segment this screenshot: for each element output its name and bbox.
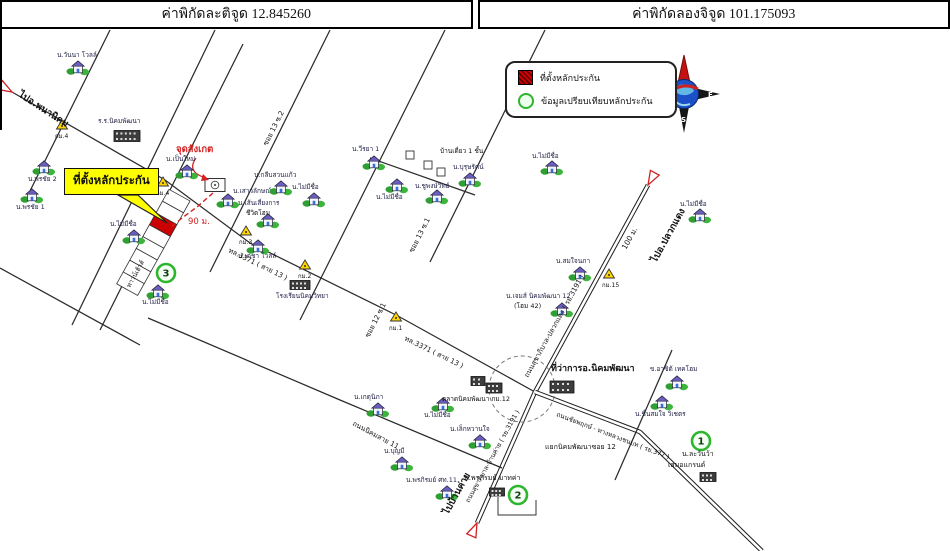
- km-marker: [608, 274, 610, 276]
- location-map: น.วันนา โวลล์น.พรชัย 2น.พรชัย 1น.ไม่มีชื…: [0, 0, 950, 551]
- building-icon: [490, 488, 505, 496]
- comparison-number: 1: [698, 437, 705, 448]
- building-icon: [486, 383, 502, 393]
- legend-item-comparison: ข้อมูลเปรียบเทียบหลักประกัน: [518, 93, 666, 109]
- house-label: น.วีรยา 1: [352, 145, 379, 153]
- house-plot-square: [406, 151, 414, 159]
- house-label: น.เป็นใหม่: [166, 154, 195, 163]
- house-label: น.ไม่มีชื่อ: [680, 199, 707, 208]
- road-ry-3191: [477, 185, 648, 523]
- house-icon: [386, 179, 409, 193]
- km-marker-label: กม.3: [239, 239, 252, 246]
- house-label: น.ไม่มีชื่อ: [424, 410, 451, 419]
- map-label: ตลาดนิคมพัฒนา กม.12: [442, 395, 510, 403]
- collateral-callout: ที่ตั้งหลักประกัน: [64, 168, 159, 195]
- map-label: เสมอแกรนด์: [668, 461, 705, 469]
- map-label: น.ละวันว้า: [682, 450, 714, 458]
- map-label: ที่ว่าการอ.นิคมพัฒนา: [551, 361, 635, 374]
- house-icon: [303, 193, 326, 207]
- house-icon: [270, 181, 293, 195]
- map-label: 90 ม.: [188, 217, 210, 227]
- km-marker-label: กม.15: [602, 282, 619, 289]
- km-marker: [300, 260, 311, 269]
- house-label: น.ไม่มีชื่อ: [376, 192, 403, 201]
- house-label: น.พรชัย 2: [28, 175, 57, 183]
- map-report-page: น.วันนา โวลล์น.พรชัย 2น.พรชัย 1น.ไม่มีชื…: [0, 0, 950, 551]
- house-icon: [689, 209, 712, 223]
- map-label: ไปอ.ปลวกแดง: [648, 206, 688, 265]
- house-icon: [426, 190, 449, 204]
- map-legend: ที่ตั้งหลักประกัน ข้อมูลเปรียบเทียบหลักป…: [505, 61, 677, 118]
- legend-comparison-label: ข้อมูลเปรียบเทียบหลักประกัน: [541, 94, 653, 108]
- compass-south-letter: S: [681, 116, 686, 124]
- house-icon: [541, 161, 564, 175]
- map-label: น.พรภิรมย์ มาทค่า: [464, 474, 521, 482]
- map-label: ชีวิตโฮม: [246, 209, 270, 217]
- road-nikhom-11: [148, 318, 502, 468]
- collateral-square-icon: [518, 70, 533, 85]
- house-label: น.พรชัย 1: [16, 203, 45, 211]
- legend-item-collateral: ที่ตั้งหลักประกัน: [518, 70, 666, 85]
- house-label: น.ไม่มีชื่อ: [110, 219, 137, 228]
- house-plot-square: [424, 161, 432, 169]
- map-label: จุดสังเกต: [176, 144, 213, 155]
- longitude-header: ค่าพิกัดลองจิจูด 101.175093: [478, 0, 950, 29]
- km-marker: [241, 226, 252, 235]
- building-icon: [290, 281, 310, 290]
- house-icon: [459, 173, 482, 187]
- house-icon: [469, 435, 492, 449]
- latitude-header: ค่าพิกัดละติจูด 12.845260: [0, 0, 473, 29]
- compass-east-letter: E: [708, 91, 713, 99]
- km-marker: [245, 231, 247, 233]
- house-label: น.เล็กหวานใจ: [450, 424, 490, 433]
- house-label: น.บุรุษรัตน์: [453, 163, 484, 171]
- house-icon: [67, 61, 90, 75]
- comparison-number: 3: [163, 269, 170, 280]
- building-label: ร.ร.นิคมพัฒนา: [98, 117, 141, 125]
- house-icon: [651, 396, 674, 410]
- house-icon: [33, 161, 56, 175]
- house-label: น.เส้นเสี่ยงการ: [238, 198, 280, 207]
- house-label: น.สมใจนภา: [556, 257, 590, 265]
- house-plot-square: [437, 168, 445, 176]
- road-end-arrow: [0, 81, 14, 97]
- house-label: น.ไม่มีชื่อ: [532, 151, 559, 160]
- km-marker-label: กม.4: [55, 133, 68, 140]
- house-label: น.ไม่มีชื่อ: [142, 297, 169, 306]
- house-label: น.ไม่มีชื่อ: [292, 182, 319, 191]
- house-icon: [367, 403, 390, 417]
- house-icon: [391, 457, 414, 471]
- road-soi-3: [210, 30, 330, 272]
- building-icon: [550, 381, 574, 393]
- map-label: แยกนิคมพัฒนาซอย 12: [545, 443, 616, 451]
- map-label: ถนนนิคมสาย 11: [351, 420, 400, 451]
- house-label: ข.อาซิต้ เทคโฮม: [650, 365, 697, 373]
- landmark-arrow: [201, 174, 209, 181]
- legend-collateral-label: ที่ตั้งหลักประกัน: [540, 71, 600, 85]
- map-label: บ้านเดี่ยว 1 ชั้น: [440, 146, 484, 155]
- house-label: น.ชื่นสมใจ วิเชตร: [635, 409, 686, 418]
- map-label: ซอย 13 ซ.1: [408, 217, 432, 254]
- map-label: ทล.3371 ( สาย 13 ): [403, 335, 465, 371]
- building-label: โรงเรียนนิคมวิทยา: [276, 292, 329, 300]
- comparison-circle-icon: [518, 93, 534, 109]
- landmark-icon: [214, 184, 216, 186]
- house-label: น.กลีบสวนแก้ว: [254, 171, 297, 179]
- house-label: น.เสาวลักษณ์: [233, 187, 271, 195]
- road-end-arrow: [467, 521, 482, 538]
- map-label: ซอย 13 ซ.2: [262, 110, 286, 147]
- building-icon: [114, 131, 140, 142]
- house-label: น.พรภิรมย์ ศท.11: [406, 476, 457, 484]
- map-label: ไปอ.พนานิคม: [16, 88, 71, 130]
- building-icon: [700, 473, 716, 482]
- building-icon: [471, 377, 485, 386]
- house-icon: [217, 194, 240, 208]
- km-marker-label: กม.1: [389, 325, 402, 332]
- house-label: น.เกตุนิภา: [354, 393, 384, 401]
- km-marker: [604, 269, 615, 278]
- km-marker: [304, 265, 306, 267]
- map-label: (โฮม 42): [514, 302, 541, 310]
- coordinate-header: ค่าพิกัดละติจูด 12.845260 ค่าพิกัดลองจิจ…: [0, 0, 950, 29]
- comparison-number: 2: [515, 491, 522, 502]
- house-label: น.ชูพงษ์วิทย์: [415, 182, 450, 190]
- house-icon: [666, 376, 689, 390]
- house-label: น.เจมส์ นิคมพัฒนา 12: [506, 292, 571, 300]
- km-marker: [162, 182, 164, 184]
- house-icon: [123, 230, 146, 244]
- km-marker-label: กม.2: [298, 273, 311, 280]
- house-label: น.วันนา โวลล์: [57, 51, 97, 59]
- km-marker: [395, 317, 397, 319]
- road-soi-4: [300, 30, 445, 320]
- map-label: ซอย 12 ซ.1: [364, 302, 388, 339]
- house-icon: [21, 189, 44, 203]
